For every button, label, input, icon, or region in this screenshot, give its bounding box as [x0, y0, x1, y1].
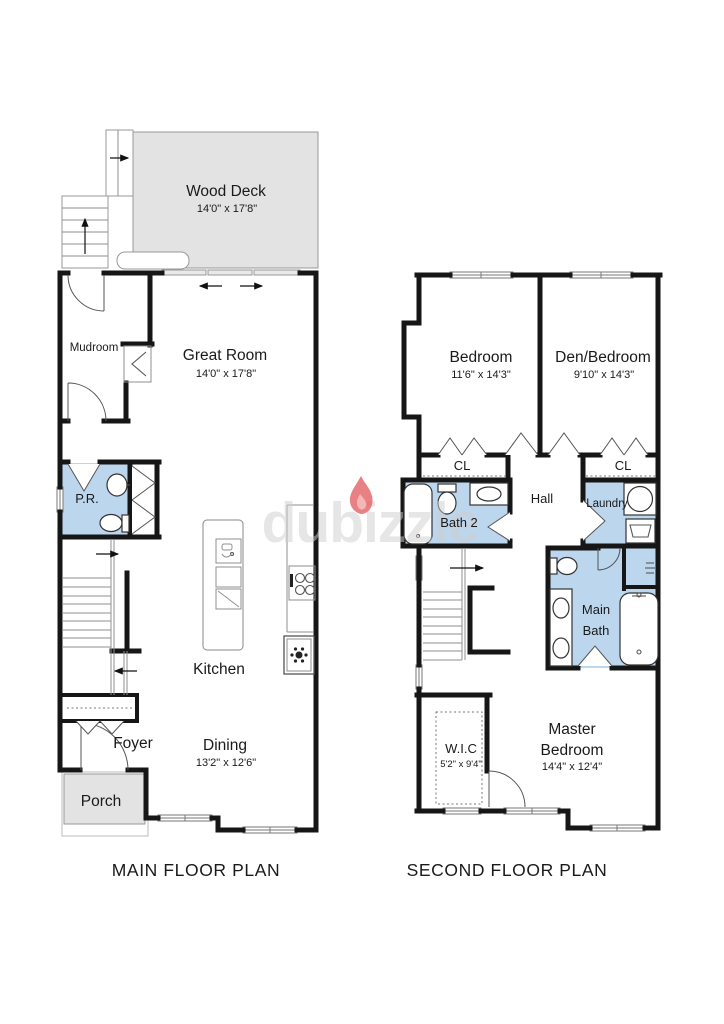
room-label-wood-deck: Wood Deck: [186, 183, 266, 200]
window: [243, 827, 297, 833]
door-swing: [548, 433, 580, 455]
washer-icon: [624, 483, 656, 515]
door-swing: [505, 433, 538, 455]
utility-niche: [124, 346, 151, 382]
room-label-closet-right: CL: [615, 458, 632, 473]
room-label-mudroom: Mudroom: [70, 342, 119, 354]
toilet-icon: [100, 515, 129, 533]
room-label-closet-left: CL: [454, 458, 471, 473]
room-label-master-1: Master: [548, 721, 595, 738]
chevron-icon: [132, 352, 146, 376]
room-label-bath2: Bath 2: [440, 515, 478, 530]
room-label-bedroom: Bedroom: [450, 349, 513, 366]
room-label-dining: Dining: [203, 737, 247, 754]
room-label-main-bath-2: Bath: [583, 623, 610, 638]
room-label-kitchen: Kitchen: [193, 661, 245, 678]
bifold-door: [132, 466, 155, 534]
main-floor-title: MAIN FLOOR PLAN: [112, 860, 280, 880]
wic-outline: [436, 712, 482, 804]
window: [504, 808, 560, 814]
flame-icon: [350, 476, 373, 514]
room-label-great-room: Great Room: [183, 347, 267, 364]
room-label-hall: Hall: [531, 491, 554, 506]
room-label-main-bath-1: Main: [582, 602, 610, 617]
room-dims-wood-deck: 14'0" x 17'8": [197, 203, 257, 215]
deck-step: [117, 252, 189, 269]
room-dims-wic: 5'2" x 9'4": [440, 759, 482, 770]
sliding-door: [162, 270, 300, 286]
upper-stairs: [423, 548, 483, 660]
floor-plan-image: dubizzle Wood Deck 14'0" x 17'8" Mudroom…: [0, 0, 724, 1024]
bathtub-icon: [620, 593, 658, 665]
exterior-stairs: [62, 196, 108, 268]
sink-icon: [107, 474, 127, 496]
door-arc: [68, 383, 106, 421]
door-arc: [68, 275, 104, 311]
room-dims-den-bedroom: 9'10" x 14'3": [574, 369, 634, 381]
room-label-porch: Porch: [81, 793, 122, 810]
window: [450, 272, 513, 278]
vanity-sinks-icon: [550, 589, 572, 666]
window: [158, 815, 212, 821]
main-floor-plan: [57, 130, 318, 836]
floor-plan-svg: dubizzle Wood Deck 14'0" x 17'8" Mudroom…: [0, 0, 724, 1024]
room-label-powder-room: P.R.: [75, 491, 99, 506]
toilet-icon: [550, 558, 577, 575]
window: [57, 487, 63, 512]
room-label-foyer: Foyer: [113, 735, 153, 752]
laundry-tub-icon: [626, 519, 655, 543]
stove-icon: [289, 566, 315, 600]
room-label-wic: W.I.C: [445, 741, 477, 756]
room-dims-dining: 13'2" x 12'6": [196, 757, 256, 769]
room-label-master-2: Bedroom: [541, 742, 604, 759]
laundry-fixtures: [624, 483, 656, 543]
interior-walls: [60, 273, 159, 651]
room-label-laundry: Laundry: [586, 498, 628, 510]
window: [416, 665, 422, 689]
room-dims-bedroom: 11'6" x 14'3": [451, 369, 511, 381]
window: [590, 825, 645, 831]
bifold-door: [600, 438, 648, 455]
window: [443, 808, 481, 814]
second-floor-title: SECOND FLOOR PLAN: [407, 860, 608, 880]
room-dims-great-room: 14'0" x 17'8": [196, 368, 256, 380]
room-label-den-bedroom: Den/Bedroom: [555, 349, 651, 366]
room-dims-master: 14'4" x 12'4": [542, 761, 602, 773]
bifold-door: [438, 438, 487, 455]
deck-landing: [106, 130, 133, 196]
door-arc: [489, 771, 525, 807]
window: [570, 272, 633, 278]
deck-area: [133, 132, 318, 268]
ceiling-fan-icon: [284, 636, 314, 674]
